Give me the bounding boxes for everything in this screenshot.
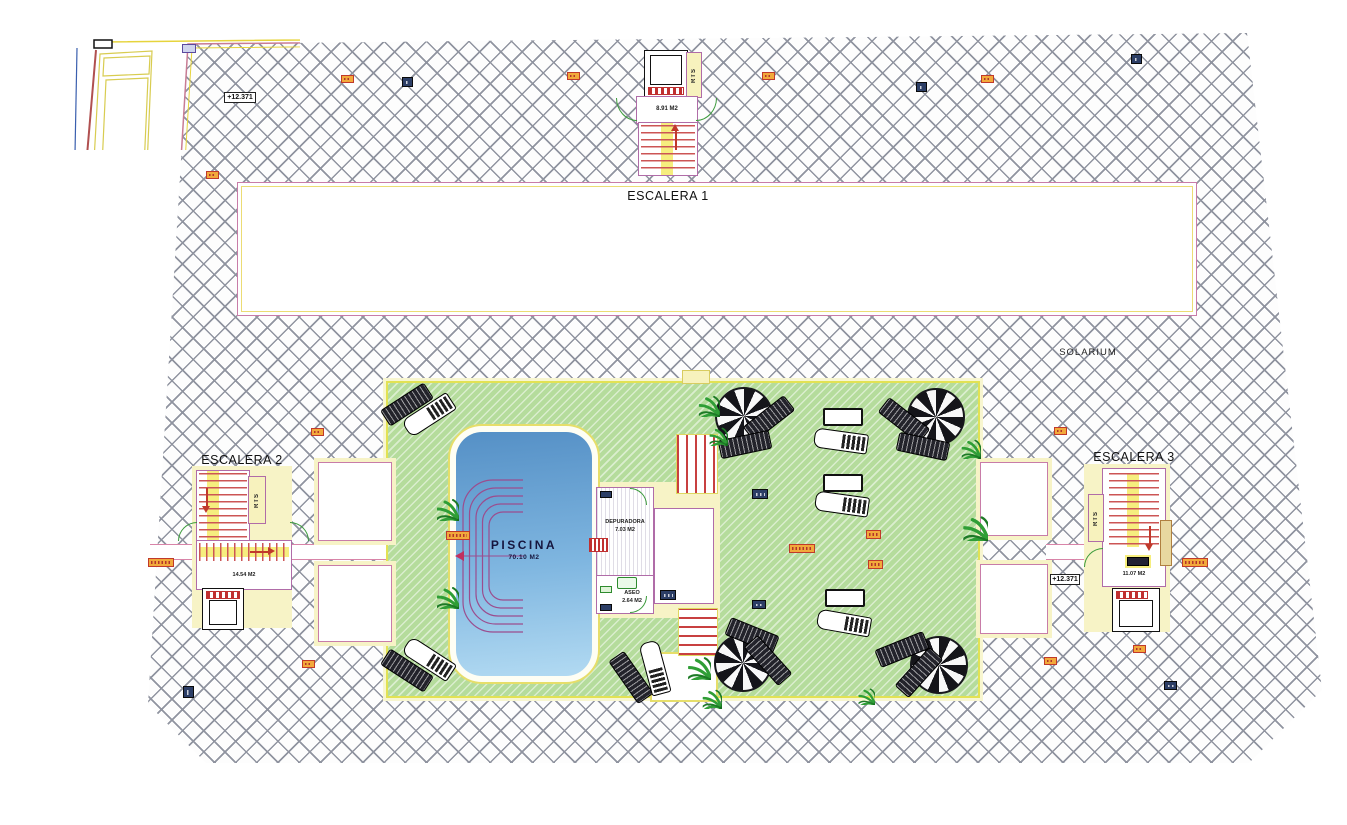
solarium-label: SOLARIUM xyxy=(1032,347,1144,358)
stairwell3-room: 11.07 M2 xyxy=(1102,468,1166,587)
cad-annotation-tag xyxy=(660,590,676,600)
stair-treads xyxy=(199,543,289,561)
corridor-west xyxy=(292,544,386,560)
cad-annotation-tag xyxy=(916,82,927,92)
stairwell1-stairs xyxy=(638,122,698,176)
cad-annotation-tag xyxy=(1182,558,1208,567)
stairwell2-area-label: 14.54 M2 xyxy=(197,571,291,579)
cad-annotation-tag xyxy=(402,77,413,87)
floor-plan-canvas: PISCINA 70.10 M2 DEPURADORA 7.03 M2 ASEO… xyxy=(0,0,1347,825)
palm-tree-icon xyxy=(415,477,459,521)
pool-area-label: 70.10 M2 xyxy=(450,554,598,561)
sink-icon xyxy=(617,577,637,589)
stairwell2-landing: 14.54 M2 xyxy=(196,540,292,590)
rts-label: RTS xyxy=(254,493,260,508)
palm-tree-icon xyxy=(943,421,980,458)
roof-skylight xyxy=(980,462,1048,536)
elevator-cab xyxy=(209,600,237,625)
cad-annotation-tag xyxy=(868,560,883,569)
cad-annotation-tag xyxy=(183,686,194,698)
roof-skylight xyxy=(318,565,392,642)
cad-annotation-tag xyxy=(789,544,815,553)
stair-treads xyxy=(1109,473,1159,547)
stairwell2-title: ESCALERA 2 xyxy=(172,453,312,467)
deck-table-icon xyxy=(823,408,863,426)
cad-annotation-tag xyxy=(1044,657,1057,665)
stairwell2-elevator xyxy=(202,588,244,630)
elevator-door xyxy=(648,87,684,95)
cad-annotation-tag xyxy=(311,428,324,436)
cad-annotation-tag xyxy=(1054,427,1067,435)
elevator-door xyxy=(206,591,240,599)
deck-table-icon xyxy=(825,589,865,607)
stairwell1-elevator xyxy=(644,50,688,98)
rts-label: RTS xyxy=(691,68,697,83)
stairwell3-rts-shaft: RTS xyxy=(1088,494,1104,542)
stairwell3-title: ESCALERA 3 xyxy=(1064,450,1204,464)
cad-annotation-tag xyxy=(446,531,470,540)
stairwell1-landing: 8.91 M2 xyxy=(636,96,698,124)
pump-icon xyxy=(589,538,608,552)
pool-name-label: PISCINA xyxy=(450,538,598,552)
depuradora-label: DEPURADORA xyxy=(597,518,653,526)
elevator-cab xyxy=(650,55,682,85)
cad-annotation-tag xyxy=(600,604,612,611)
deck-table-icon xyxy=(823,474,863,492)
cad-annotation-tag xyxy=(567,72,580,80)
cad-annotation-tag xyxy=(752,600,766,609)
roof-skylight xyxy=(318,462,392,541)
rts-label: RTS xyxy=(1093,511,1099,526)
stair-treads xyxy=(641,125,695,173)
stairwell1-rts-shaft: RTS xyxy=(686,52,702,98)
cad-annotation-tag xyxy=(148,558,174,567)
cad-annotation-tag xyxy=(1164,681,1177,690)
pool: PISCINA 70.10 M2 xyxy=(448,424,600,684)
depuradora-area-label: 7.03 M2 xyxy=(597,526,653,534)
cad-annotation-tag xyxy=(866,530,881,539)
cad-annotation-tag xyxy=(1131,54,1142,64)
cad-annotation-tag xyxy=(302,660,315,668)
cad-annotation-tag xyxy=(182,44,196,53)
palm-tree-icon xyxy=(938,491,989,542)
cad-annotation-tag xyxy=(600,491,612,498)
level-annotation: +12.371 xyxy=(1050,574,1080,585)
cad-annotation-tag xyxy=(341,75,354,83)
cad-annotation-tag xyxy=(1133,645,1146,653)
level-annotation: +12.371 xyxy=(224,92,256,103)
stairwell2-rts-shaft: RTS xyxy=(248,476,266,524)
stairwell3-elevator xyxy=(1112,588,1160,632)
stairwell1-area-label: 8.91 M2 xyxy=(637,105,697,114)
elevator-door xyxy=(1116,591,1148,599)
roof-skylight xyxy=(980,564,1048,634)
stairwell1-title: ESCALERA 1 xyxy=(598,189,738,203)
cad-annotation-tag xyxy=(1127,557,1149,566)
stairwell3-duct xyxy=(1160,520,1172,566)
palm-tree-icon xyxy=(415,565,459,609)
elevator-cab xyxy=(1119,600,1153,627)
cad-annotation-tag xyxy=(981,75,994,83)
cad-annotation-tag xyxy=(600,586,612,593)
palm-tree-icon xyxy=(684,671,721,708)
cad-annotation-tag xyxy=(752,489,768,499)
cad-annotation-tag xyxy=(762,72,775,80)
palm-tree-icon xyxy=(692,410,727,445)
palm-tree-icon xyxy=(842,672,875,705)
cad-annotation-tag xyxy=(206,171,219,179)
stairwell3-area-label: 11.07 M2 xyxy=(1103,570,1165,578)
